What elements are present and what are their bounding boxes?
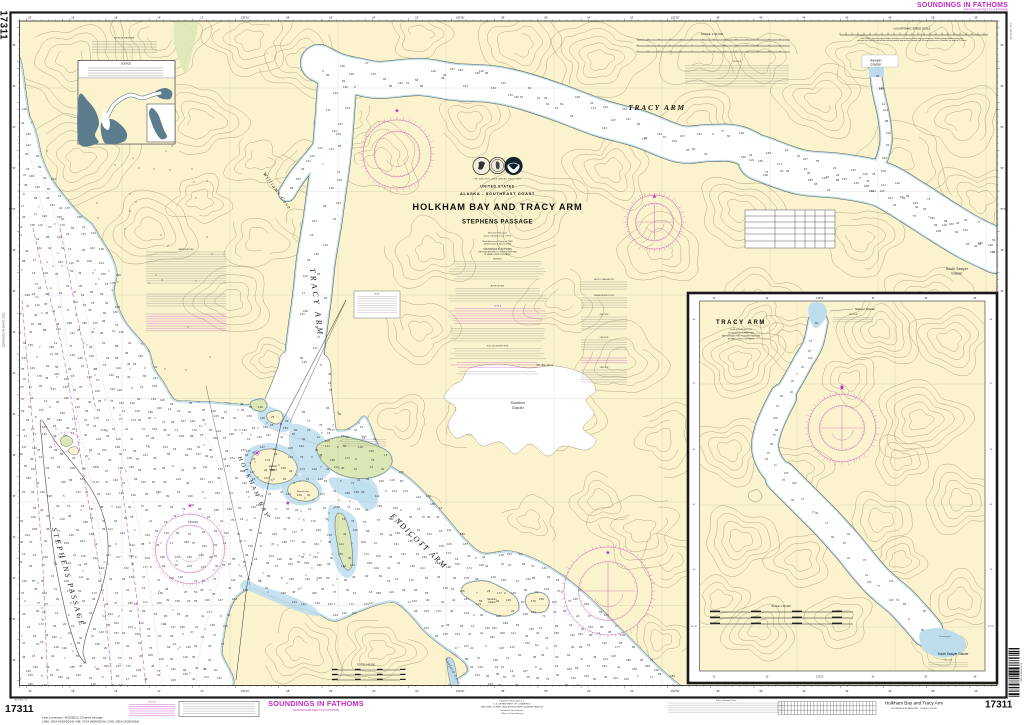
svg-text:46: 46 xyxy=(127,362,131,366)
svg-text:52': 52' xyxy=(12,167,16,170)
svg-text:27: 27 xyxy=(58,305,62,309)
svg-text:LNM: 1514 (4/15/2014), NM: 171: LNM: 1514 (4/15/2014), NM: 1714 (4/26/20… xyxy=(42,720,139,724)
svg-text:171: 171 xyxy=(467,566,472,570)
svg-text:55: 55 xyxy=(53,624,57,628)
svg-text:198: 198 xyxy=(32,527,37,531)
svg-text:51: 51 xyxy=(22,490,26,494)
svg-text:47: 47 xyxy=(190,630,194,634)
svg-text:98: 98 xyxy=(923,609,926,613)
svg-text:128: 128 xyxy=(410,564,415,568)
svg-text:27: 27 xyxy=(84,418,88,422)
svg-text:17: 17 xyxy=(199,424,203,428)
svg-text:15: 15 xyxy=(555,106,559,110)
svg-text:170: 170 xyxy=(531,599,536,603)
svg-text:122: 122 xyxy=(26,143,31,147)
svg-text:115: 115 xyxy=(390,478,395,482)
svg-text:83: 83 xyxy=(460,624,464,628)
svg-text:141: 141 xyxy=(427,532,432,536)
svg-text:44': 44' xyxy=(802,689,806,693)
svg-text:SCALE 1:20,000: SCALE 1:20,000 xyxy=(771,604,791,608)
svg-text:17311: 17311 xyxy=(5,703,34,715)
svg-text:62: 62 xyxy=(546,102,550,106)
svg-text:34: 34 xyxy=(51,654,55,658)
svg-text:126: 126 xyxy=(314,252,319,256)
svg-text:123: 123 xyxy=(478,665,483,669)
svg-text:33: 33 xyxy=(170,505,174,509)
svg-text:103: 103 xyxy=(42,591,47,595)
svg-text:85: 85 xyxy=(338,144,342,148)
svg-text:116: 116 xyxy=(889,598,894,602)
svg-text:27: 27 xyxy=(234,428,238,432)
svg-text:53: 53 xyxy=(55,352,59,356)
svg-text:197: 197 xyxy=(196,452,201,456)
svg-text:60: 60 xyxy=(692,147,696,151)
svg-text:42: 42 xyxy=(704,152,708,156)
svg-text:39: 39 xyxy=(225,449,229,453)
svg-text:North American Datum of 1983: North American Datum of 1983 xyxy=(482,240,513,243)
svg-text:183: 183 xyxy=(227,507,232,511)
svg-text:59: 59 xyxy=(115,356,119,360)
svg-text:162: 162 xyxy=(25,533,30,537)
svg-text:68: 68 xyxy=(775,428,778,432)
svg-text:63: 63 xyxy=(134,477,138,481)
svg-text:107: 107 xyxy=(680,134,685,138)
svg-text:190: 190 xyxy=(514,95,519,99)
svg-text:17: 17 xyxy=(34,212,38,216)
svg-text:60: 60 xyxy=(480,613,484,617)
svg-text:56': 56' xyxy=(1001,85,1005,88)
svg-text:15: 15 xyxy=(32,654,36,658)
svg-text:161: 161 xyxy=(230,456,235,460)
svg-text:48': 48' xyxy=(1001,249,1005,252)
svg-text:141: 141 xyxy=(301,602,306,606)
svg-text:52: 52 xyxy=(70,269,74,273)
svg-text:94: 94 xyxy=(383,77,387,81)
svg-text:22: 22 xyxy=(93,424,97,428)
svg-text:54': 54' xyxy=(1001,126,1005,129)
svg-text:11: 11 xyxy=(175,428,178,432)
svg-text:27: 27 xyxy=(37,601,41,605)
svg-text:62: 62 xyxy=(155,529,159,533)
svg-text:Published at Washington, D.C.: Published at Washington, D.C. xyxy=(499,700,525,703)
svg-text:163: 163 xyxy=(286,492,291,496)
svg-text:46: 46 xyxy=(486,674,490,678)
svg-text:103: 103 xyxy=(128,625,133,629)
svg-text:141: 141 xyxy=(881,183,886,187)
svg-text:29: 29 xyxy=(487,589,491,593)
svg-text:94: 94 xyxy=(640,658,644,662)
svg-text:30: 30 xyxy=(145,508,149,512)
svg-text:56: 56 xyxy=(145,492,149,496)
svg-text:85: 85 xyxy=(60,452,64,456)
svg-text:147: 147 xyxy=(218,598,223,602)
svg-text:171: 171 xyxy=(777,162,782,166)
svg-text:★: ★ xyxy=(187,503,192,510)
svg-text:85: 85 xyxy=(658,672,662,676)
svg-text:52': 52' xyxy=(630,16,634,20)
svg-text:15: 15 xyxy=(246,490,250,494)
svg-text:73: 73 xyxy=(194,579,198,583)
svg-text:43: 43 xyxy=(436,515,440,519)
svg-text:88: 88 xyxy=(43,328,47,332)
svg-text:118: 118 xyxy=(611,654,616,658)
svg-text:133°00': 133°00' xyxy=(456,16,465,20)
svg-text:41: 41 xyxy=(387,566,391,570)
svg-text:174: 174 xyxy=(591,106,596,110)
svg-text:97: 97 xyxy=(23,377,27,381)
svg-text:124: 124 xyxy=(99,261,104,265)
svg-text:47: 47 xyxy=(213,633,217,637)
svg-text:112: 112 xyxy=(35,303,40,307)
svg-text:100: 100 xyxy=(552,600,557,604)
svg-text:46: 46 xyxy=(328,372,332,376)
svg-text:POLLUTION REPORTS: POLLUTION REPORTS xyxy=(487,346,509,348)
svg-text:99: 99 xyxy=(533,655,537,659)
svg-text:53: 53 xyxy=(81,293,85,297)
svg-text:44: 44 xyxy=(467,554,471,558)
svg-text:142: 142 xyxy=(570,633,575,637)
svg-text:★: ★ xyxy=(394,108,399,115)
svg-text:65: 65 xyxy=(536,676,540,680)
svg-text:39: 39 xyxy=(30,457,34,461)
svg-text:25: 25 xyxy=(619,641,623,645)
svg-text:71: 71 xyxy=(325,517,329,521)
svg-text:58: 58 xyxy=(415,78,419,82)
svg-text:108: 108 xyxy=(936,229,941,233)
svg-text:111: 111 xyxy=(79,575,84,579)
svg-text:179: 179 xyxy=(604,613,609,617)
svg-text:124: 124 xyxy=(613,676,618,680)
svg-text:47: 47 xyxy=(580,657,584,661)
svg-text:57: 57 xyxy=(188,532,192,536)
svg-text:12: 12 xyxy=(275,564,279,568)
svg-text:180: 180 xyxy=(128,601,133,605)
svg-text:184: 184 xyxy=(232,597,237,601)
svg-text:81: 81 xyxy=(44,539,48,543)
svg-text:72: 72 xyxy=(162,420,166,424)
svg-text:132°50': 132°50' xyxy=(671,689,680,693)
svg-text:10: 10 xyxy=(265,586,269,590)
svg-text:193: 193 xyxy=(151,397,156,401)
svg-text:66: 66 xyxy=(24,464,28,468)
svg-text:75: 75 xyxy=(149,646,153,650)
svg-text:140: 140 xyxy=(620,633,625,637)
svg-text:124: 124 xyxy=(464,611,469,615)
svg-text:37: 37 xyxy=(539,667,543,671)
svg-text:23: 23 xyxy=(40,640,44,644)
svg-text:56: 56 xyxy=(202,408,206,412)
svg-text:157: 157 xyxy=(76,490,81,494)
svg-text:14: 14 xyxy=(384,453,388,457)
svg-text:48: 48 xyxy=(45,376,49,380)
svg-text:LOGARITHMIC SPEED SCALE: LOGARITHMIC SPEED SCALE xyxy=(894,27,931,31)
svg-text:96: 96 xyxy=(344,578,348,582)
svg-text:49: 49 xyxy=(127,375,131,379)
svg-text:41: 41 xyxy=(125,427,129,431)
svg-text:44': 44' xyxy=(12,331,16,334)
svg-text:40: 40 xyxy=(20,540,24,544)
svg-text:165: 165 xyxy=(129,465,134,469)
svg-text:133: 133 xyxy=(129,575,134,579)
svg-text:38: 38 xyxy=(170,634,174,638)
svg-text:25: 25 xyxy=(271,415,275,419)
svg-text:57: 57 xyxy=(773,433,776,437)
svg-text:196: 196 xyxy=(188,494,193,498)
svg-text:THE NATION’S CHARTMAKER SINCE: THE NATION’S CHARTMAKER SINCE 1807 xyxy=(474,177,522,180)
svg-text:163: 163 xyxy=(424,609,429,613)
svg-text:77: 77 xyxy=(877,584,880,588)
svg-text:191: 191 xyxy=(99,566,104,570)
svg-text:110: 110 xyxy=(38,223,43,227)
svg-text:54: 54 xyxy=(194,590,198,594)
svg-text:08': 08' xyxy=(973,676,977,679)
svg-text:42: 42 xyxy=(167,433,171,437)
svg-text:200: 200 xyxy=(148,653,153,657)
svg-text:97: 97 xyxy=(158,634,162,638)
svg-text:157: 157 xyxy=(296,177,301,181)
svg-text:121: 121 xyxy=(108,527,113,531)
svg-text:196: 196 xyxy=(148,410,153,414)
svg-text:132: 132 xyxy=(116,505,121,509)
svg-text:17311: 17311 xyxy=(0,11,9,41)
svg-text:25: 25 xyxy=(73,290,77,294)
svg-text:44: 44 xyxy=(59,206,63,210)
svg-text:57: 57 xyxy=(913,214,917,218)
svg-text:184: 184 xyxy=(215,491,220,495)
svg-text:54: 54 xyxy=(503,675,507,679)
svg-text:16: 16 xyxy=(254,557,258,561)
svg-text:34: 34 xyxy=(139,654,143,658)
svg-text:40: 40 xyxy=(90,507,94,511)
svg-text:95: 95 xyxy=(414,588,418,592)
svg-text:29: 29 xyxy=(72,456,76,460)
svg-text:162: 162 xyxy=(455,562,460,566)
svg-text:36: 36 xyxy=(437,575,441,579)
svg-text:08': 08' xyxy=(286,16,290,20)
svg-text:66: 66 xyxy=(26,418,30,422)
svg-text:183: 183 xyxy=(93,465,98,469)
svg-text:194: 194 xyxy=(315,601,320,605)
svg-text:186: 186 xyxy=(626,658,631,662)
svg-text:25: 25 xyxy=(184,590,188,594)
svg-text:11: 11 xyxy=(54,587,57,591)
svg-text:108: 108 xyxy=(179,434,184,438)
svg-text:199: 199 xyxy=(42,214,47,218)
svg-text:59: 59 xyxy=(479,599,483,603)
svg-text:50: 50 xyxy=(209,448,213,452)
svg-text:41: 41 xyxy=(149,519,153,523)
svg-text:38: 38 xyxy=(266,561,270,565)
svg-text:59: 59 xyxy=(33,506,37,510)
svg-text:80: 80 xyxy=(90,290,94,294)
svg-text:45: 45 xyxy=(228,586,232,590)
svg-text:79: 79 xyxy=(182,507,186,511)
svg-text:193: 193 xyxy=(164,531,169,535)
svg-text:50: 50 xyxy=(152,480,156,484)
svg-text:46: 46 xyxy=(22,655,26,659)
svg-text:17: 17 xyxy=(170,541,174,545)
svg-text:14': 14' xyxy=(157,16,161,20)
svg-text:28: 28 xyxy=(38,286,42,290)
svg-text:15: 15 xyxy=(247,437,251,441)
svg-text:(FATHOMS AND FEET TO 11 FATHOM: (FATHOMS AND FEET TO 11 FATHOMS) xyxy=(964,8,1009,11)
svg-text:200: 200 xyxy=(500,631,505,635)
svg-text:100: 100 xyxy=(310,154,315,158)
svg-text:125: 125 xyxy=(22,579,27,583)
svg-text:ABBREVIATIONS: ABBREVIATIONS xyxy=(178,248,194,251)
svg-text:53: 53 xyxy=(245,453,249,457)
svg-text:185: 185 xyxy=(376,591,381,595)
svg-text:21: 21 xyxy=(112,329,116,333)
svg-text:34: 34 xyxy=(76,259,80,263)
svg-text:153: 153 xyxy=(588,625,593,629)
svg-text:85: 85 xyxy=(290,186,294,190)
svg-text:46: 46 xyxy=(815,511,818,515)
svg-text:64: 64 xyxy=(76,528,80,532)
svg-text:118: 118 xyxy=(30,366,35,370)
svg-text:62: 62 xyxy=(128,505,132,509)
svg-text:117: 117 xyxy=(116,555,121,559)
svg-text:SOURCE DIAGRAM: SOURCE DIAGRAM xyxy=(114,37,134,40)
svg-text:15: 15 xyxy=(439,506,443,510)
svg-text:105: 105 xyxy=(325,439,330,443)
svg-text:187: 187 xyxy=(463,542,468,546)
svg-text:39: 39 xyxy=(54,448,58,452)
svg-text:62: 62 xyxy=(560,102,564,106)
svg-text:06': 06' xyxy=(329,16,333,20)
svg-text:20': 20' xyxy=(28,16,32,20)
svg-text:17311: 17311 xyxy=(985,700,1013,711)
svg-text:(World Geodetic System 1984): (World Geodetic System 1984) xyxy=(484,243,512,246)
svg-text:167: 167 xyxy=(106,553,111,557)
svg-text:15: 15 xyxy=(105,282,109,286)
svg-text:134: 134 xyxy=(257,435,262,439)
svg-text:115: 115 xyxy=(115,641,120,645)
svg-text:79: 79 xyxy=(319,423,323,427)
svg-text:181: 181 xyxy=(114,621,119,625)
svg-text:187: 187 xyxy=(464,597,469,601)
svg-text:64: 64 xyxy=(556,578,560,582)
svg-text:57°50': 57°50' xyxy=(1001,208,1008,211)
svg-text:15: 15 xyxy=(58,194,62,198)
svg-text:37: 37 xyxy=(105,480,109,484)
svg-text:53: 53 xyxy=(157,673,161,677)
svg-text:23: 23 xyxy=(46,466,50,470)
svg-text:96: 96 xyxy=(496,672,500,676)
svg-text:148: 148 xyxy=(988,243,993,247)
svg-text:119: 119 xyxy=(258,405,263,409)
svg-text:197: 197 xyxy=(143,453,148,457)
svg-text:170: 170 xyxy=(508,93,513,97)
svg-text:16': 16' xyxy=(114,689,118,693)
svg-text:181: 181 xyxy=(119,401,124,405)
svg-text:44: 44 xyxy=(443,73,447,77)
svg-text:107: 107 xyxy=(784,471,789,475)
svg-text:129: 129 xyxy=(152,384,157,388)
svg-text:25: 25 xyxy=(801,365,804,369)
svg-text:137: 137 xyxy=(401,552,406,556)
svg-text:54': 54' xyxy=(12,126,16,129)
svg-text:169: 169 xyxy=(367,561,372,565)
svg-text:45: 45 xyxy=(240,402,244,406)
svg-text:17: 17 xyxy=(126,677,130,681)
svg-text:161: 161 xyxy=(697,132,702,136)
svg-text:120: 120 xyxy=(135,409,140,413)
svg-text:48: 48 xyxy=(53,434,57,438)
svg-text:10: 10 xyxy=(501,665,505,669)
svg-text:15: 15 xyxy=(341,434,345,438)
svg-text:21: 21 xyxy=(82,225,86,229)
svg-text:32: 32 xyxy=(36,237,40,241)
svg-text:107: 107 xyxy=(464,644,469,648)
svg-text:67: 67 xyxy=(73,388,77,392)
svg-text:184: 184 xyxy=(115,305,120,309)
svg-text:85: 85 xyxy=(189,401,193,405)
svg-text:110: 110 xyxy=(93,321,98,325)
svg-text:46: 46 xyxy=(791,498,794,502)
svg-text:19: 19 xyxy=(142,586,146,590)
svg-text:38: 38 xyxy=(327,427,331,431)
svg-text:130: 130 xyxy=(70,353,75,357)
svg-text:111: 111 xyxy=(203,465,208,469)
svg-text:181: 181 xyxy=(447,542,452,546)
svg-text:156: 156 xyxy=(175,599,180,603)
svg-text:76: 76 xyxy=(546,677,550,681)
svg-text:54': 54' xyxy=(587,16,591,20)
svg-text:Unsurveyed: Unsurveyed xyxy=(939,636,951,638)
svg-text:33: 33 xyxy=(780,169,784,173)
svg-text:186: 186 xyxy=(184,540,189,544)
svg-text:94: 94 xyxy=(147,627,151,631)
svg-text:159: 159 xyxy=(138,354,143,358)
svg-text:38: 38 xyxy=(402,588,406,592)
svg-text:Glacier: Glacier xyxy=(512,406,525,410)
svg-text:78: 78 xyxy=(872,172,876,176)
svg-text:174: 174 xyxy=(300,467,305,471)
svg-text:99: 99 xyxy=(786,169,790,173)
svg-text:96: 96 xyxy=(39,384,43,388)
svg-text:153: 153 xyxy=(275,516,280,520)
svg-text:33: 33 xyxy=(31,490,35,494)
svg-text:33: 33 xyxy=(217,476,221,480)
svg-text:163: 163 xyxy=(202,544,207,548)
svg-text:97: 97 xyxy=(863,558,866,562)
svg-text:15: 15 xyxy=(327,431,331,435)
svg-text:13': 13' xyxy=(712,676,716,679)
svg-text:55: 55 xyxy=(90,516,94,520)
svg-text:113: 113 xyxy=(73,300,78,304)
svg-text:53: 53 xyxy=(83,303,87,307)
svg-text:38: 38 xyxy=(770,442,773,446)
svg-text:70: 70 xyxy=(531,564,535,568)
svg-text:84: 84 xyxy=(425,576,429,580)
svg-text:Mercator Projection: Mercator Projection xyxy=(488,232,508,235)
svg-text:194: 194 xyxy=(31,467,36,471)
svg-text:30: 30 xyxy=(571,645,575,649)
svg-text:13: 13 xyxy=(539,626,543,630)
svg-text:55: 55 xyxy=(41,579,45,583)
svg-text:HOLKHAM BAY AND TRACY ARM: HOLKHAM BAY AND TRACY ARM xyxy=(412,202,582,212)
svg-text:90: 90 xyxy=(330,556,334,560)
svg-text:09': 09' xyxy=(924,297,928,300)
svg-text:41: 41 xyxy=(865,573,868,577)
svg-text:186: 186 xyxy=(345,491,350,495)
svg-text:18': 18' xyxy=(71,16,75,20)
svg-text:172: 172 xyxy=(446,551,451,555)
svg-text:110: 110 xyxy=(352,611,357,615)
svg-text:20: 20 xyxy=(63,622,67,626)
svg-text:56: 56 xyxy=(77,641,81,645)
